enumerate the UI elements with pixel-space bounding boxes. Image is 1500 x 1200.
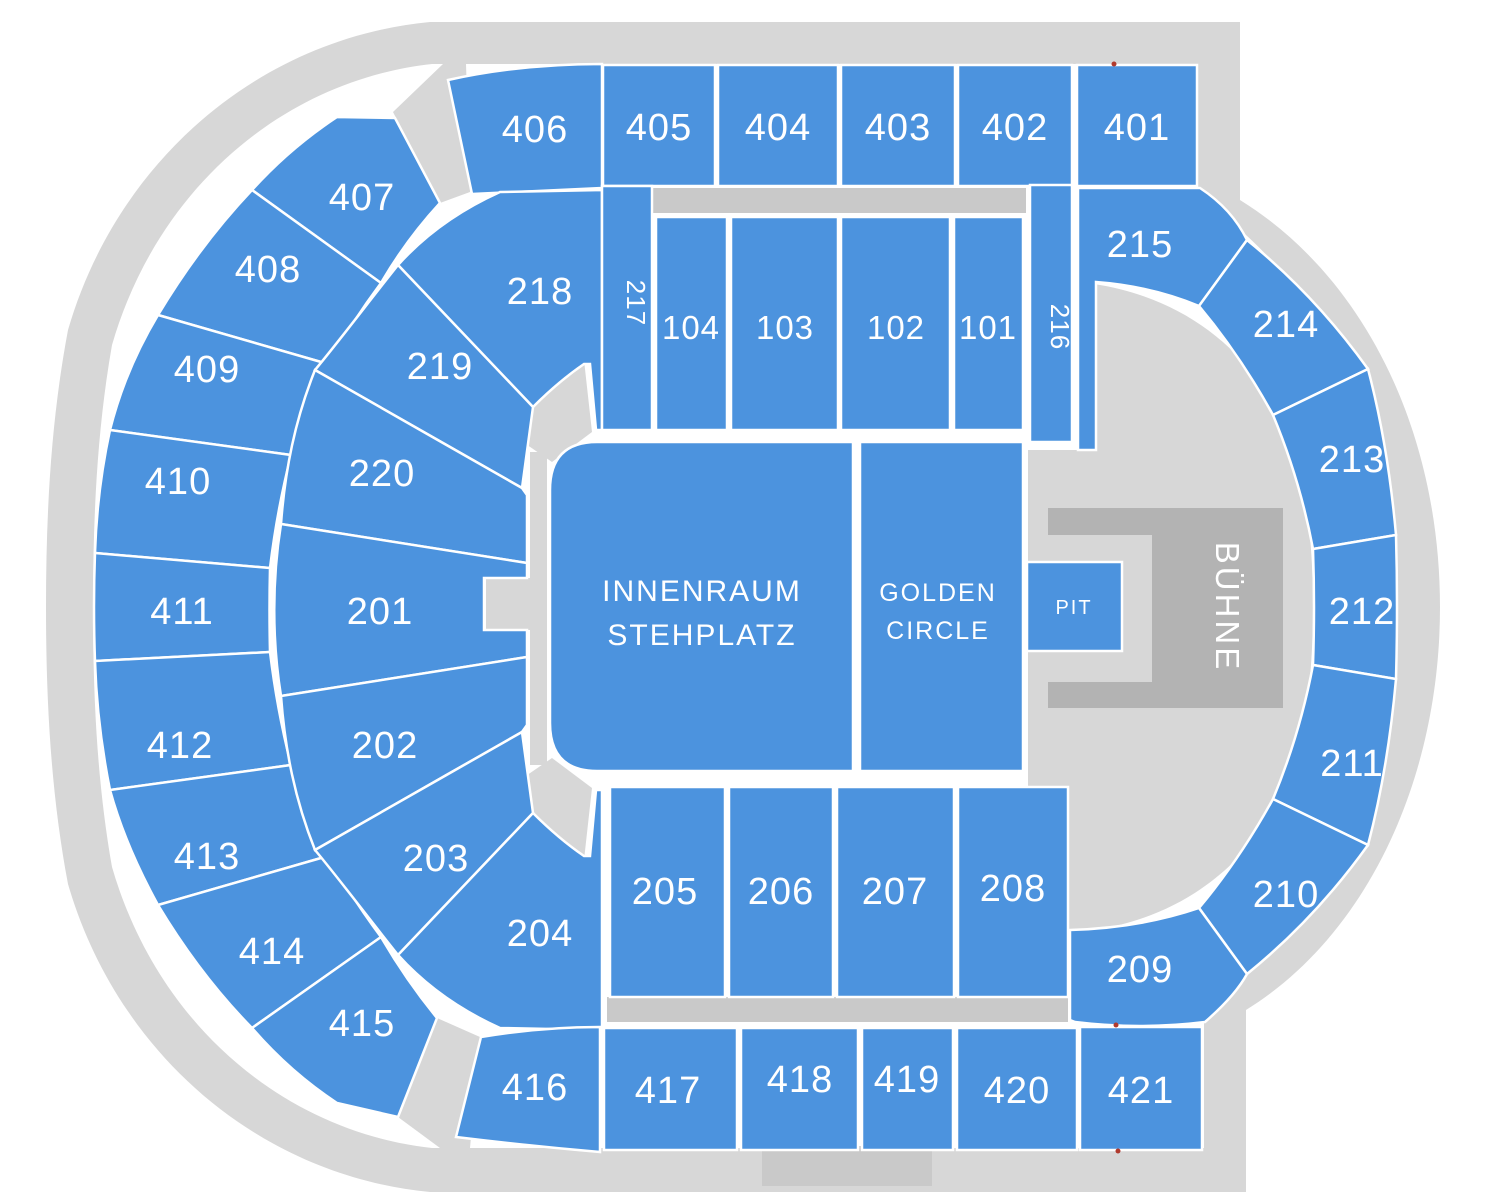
section-420-label: 420 [984, 1070, 1050, 1112]
entry-tab-bottom [762, 1146, 932, 1186]
section-103-label: 103 [756, 309, 814, 346]
section-405-label: 405 [626, 107, 692, 149]
section-215-label: 215 [1107, 224, 1173, 266]
pit-label: PIT [1055, 597, 1092, 619]
section-209-label: 209 [1107, 949, 1173, 991]
entry-band-top [653, 188, 1026, 213]
section-416-label: 416 [502, 1067, 568, 1109]
section-407-label: 407 [329, 177, 395, 219]
section-412-label: 412 [147, 725, 213, 767]
section-406-label: 406 [502, 109, 568, 151]
section-217-label: 217 [621, 280, 651, 326]
section-409-label: 409 [174, 349, 240, 391]
innenraum-label-line2: STEHPLATZ [607, 619, 796, 652]
section-218-label: 218 [507, 271, 573, 313]
innenraum-label-line1: INNENRAUM [602, 575, 802, 608]
section-411-label: 411 [150, 591, 214, 633]
section-210-label: 210 [1253, 874, 1319, 916]
section-203-label: 203 [403, 838, 469, 880]
golden-circle-label-line1: GOLDEN [879, 579, 997, 607]
section-214-label: 214 [1253, 304, 1319, 346]
section-419-label: 419 [874, 1059, 940, 1101]
section-402-label: 402 [982, 107, 1048, 149]
section-213-label: 213 [1319, 439, 1385, 481]
entry-band-bottom [607, 997, 1068, 1022]
section-413-label: 413 [174, 836, 240, 878]
stage-label: BÜHNE [1209, 542, 1246, 673]
section-410-label: 410 [145, 461, 211, 503]
section-104-label: 104 [662, 309, 720, 346]
golden-circle-label-line2: CIRCLE [886, 617, 990, 645]
section-208-label: 208 [980, 868, 1046, 910]
section-421-label: 421 [1108, 1070, 1174, 1112]
section-418-label: 418 [767, 1059, 833, 1101]
section-102-label: 102 [867, 309, 925, 346]
marker-dot-middle [1114, 1023, 1119, 1028]
section-202-label: 202 [352, 725, 418, 767]
section-401-label: 401 [1104, 107, 1170, 149]
entry-box-left [486, 578, 547, 630]
section-101-label: 101 [959, 309, 1017, 346]
section-207-label: 207 [862, 871, 928, 913]
section-204-label: 204 [507, 913, 573, 955]
section-403-label: 403 [865, 107, 931, 149]
section-415-label: 415 [329, 1003, 395, 1045]
section-417-label: 417 [635, 1070, 701, 1112]
marker-dot-top [1112, 62, 1117, 67]
section-404-label: 404 [745, 107, 811, 149]
section-206-label: 206 [748, 871, 814, 913]
section-216-label: 216 [1045, 304, 1075, 350]
section-220-label: 220 [349, 453, 415, 495]
marker-dot-bottom [1116, 1149, 1121, 1154]
arena-seat-map: 401 402 403 404 405 406 407 408 409 410 … [0, 0, 1500, 1200]
section-212-label: 212 [1329, 591, 1395, 633]
section-211-label: 211 [1320, 743, 1384, 785]
section-408-label: 408 [235, 249, 301, 291]
section-205-label: 205 [632, 871, 698, 913]
section-414-label: 414 [239, 931, 305, 973]
section-201-label: 201 [347, 591, 413, 633]
section-219-label: 219 [407, 346, 473, 388]
